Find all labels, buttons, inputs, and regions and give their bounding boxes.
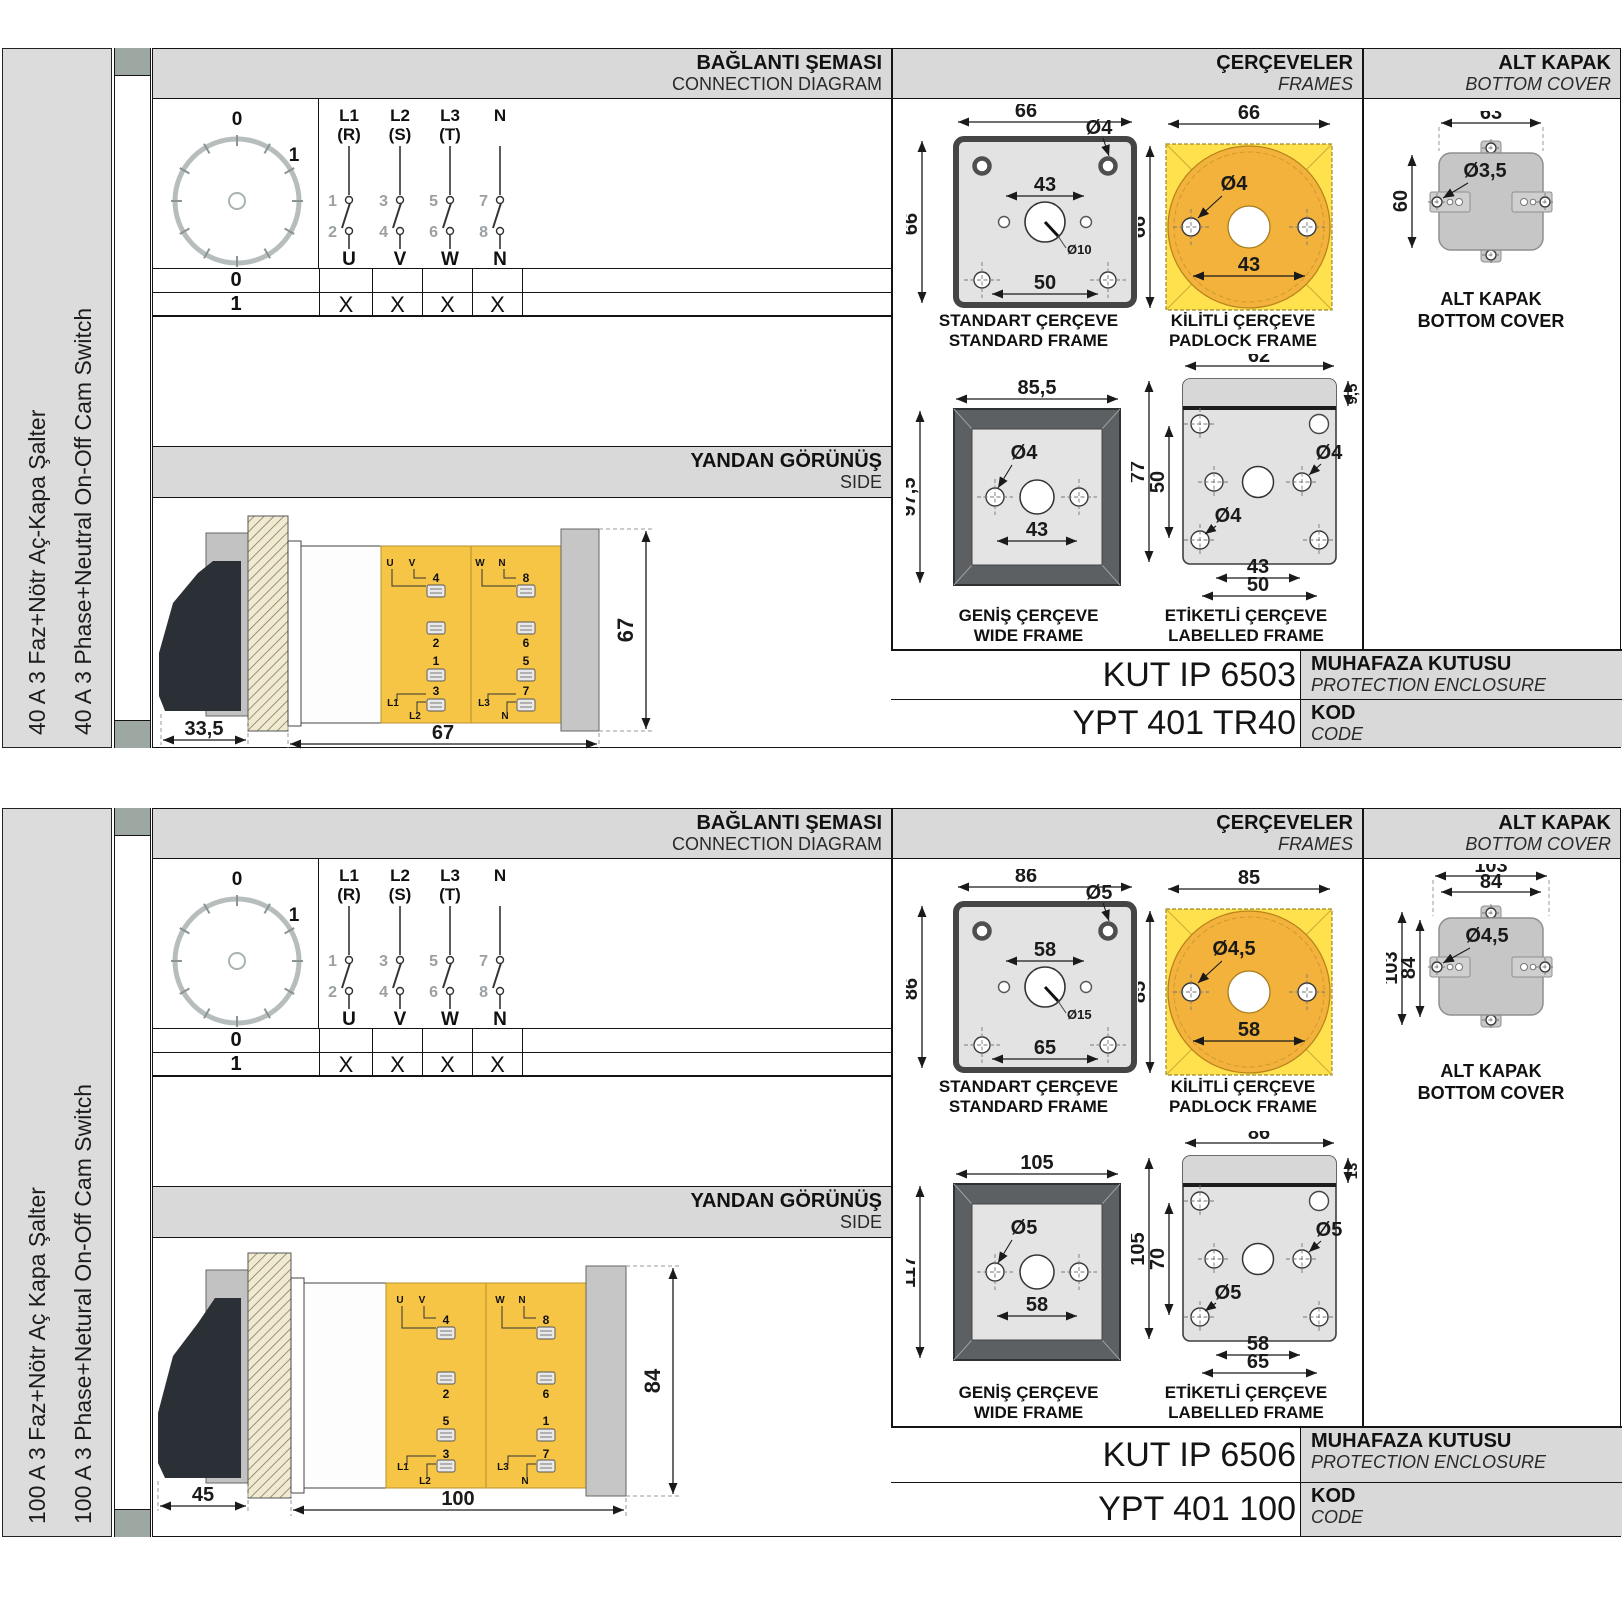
svg-text:7: 7 [543, 1447, 550, 1461]
phase-label: L1 [339, 106, 359, 125]
phase-label: N [494, 106, 506, 125]
table-cell: X [373, 1053, 423, 1075]
table-cell: X [373, 293, 423, 315]
bottom-cover-drawing: 63 60 Ø3,5 [1386, 111, 1606, 286]
svg-text:V: V [419, 1295, 426, 1306]
svg-text:3: 3 [443, 1447, 450, 1461]
mounting-plate [248, 1253, 291, 1498]
column-divider [1362, 809, 1364, 1426]
code-label: KOD CODE [1300, 1483, 1622, 1536]
svg-text:N: N [498, 558, 505, 569]
product-side-label-panel: 100 A 3 Faz+Nötr Aç Kapa Şalter 100 A 3 … [2, 808, 112, 1537]
header-english: FRAMES [891, 75, 1353, 95]
header-turkish: YANDAN GÖRÜNÜŞ [153, 1190, 882, 1213]
dim-span-outer: 50 [1247, 574, 1269, 596]
phase-column-l1: L1 (R) 1 2 U [328, 106, 361, 269]
caption-english: PADLOCK FRAME [1138, 331, 1348, 351]
bottom-cover-cell: 103 84 103 84 Ø4,5 [1386, 864, 1606, 1054]
dim-width: 86 [1248, 1131, 1270, 1144]
wide-frame-cell: 85,5 97,5 Ø4 43 [906, 379, 1151, 604]
bottom-cover-cell: 63 60 Ø3,5 [1386, 111, 1606, 286]
binder-strip [114, 808, 151, 1537]
phase-sublabel: (T) [439, 885, 461, 904]
dim-width: 66 [1015, 104, 1037, 122]
bottom-cover-drawing: 103 84 103 84 Ø4,5 [1386, 864, 1606, 1054]
contact-number-top: 3 [379, 193, 388, 210]
contact-number-bottom: 8 [479, 224, 488, 241]
bottom-cover-header: ALT KAPAK BOTTOM COVER [1362, 809, 1620, 859]
product-name-english: 40 A 3 Phase+Neutral On-Off Cam Switch [72, 308, 95, 735]
output-label: W [441, 249, 459, 269]
dim-width: 86 [1015, 869, 1037, 887]
svg-text:5: 5 [443, 1414, 450, 1428]
bottom-cover-header: ALT KAPAK BOTTOM COVER [1362, 49, 1620, 99]
dial-position-0: 0 [232, 109, 243, 130]
dim-height-inner: 84 [1398, 956, 1420, 979]
svg-text:U: U [386, 558, 393, 569]
product-code-row: YPT 401 TR40 KOD CODE [891, 699, 1622, 747]
table-cell: X [320, 1053, 373, 1075]
dim-body-depth: 67 [432, 722, 454, 744]
output-label: V [394, 1009, 407, 1029]
table-cell: X [423, 1053, 473, 1075]
enclosure-label: MUHAFAZA KUTUSU PROTECTION ENCLOSURE [1300, 1428, 1622, 1482]
contact-number-top: 7 [479, 953, 488, 970]
phase-label: L3 [440, 106, 460, 125]
header-english: CONNECTION DIAGRAM [153, 75, 882, 95]
caption-turkish: GENİŞ ÇERÇEVE [906, 1383, 1151, 1403]
output-label: N [493, 249, 507, 269]
dim-hole-span: 43 [1026, 519, 1048, 541]
switch-table-row-0: 0 [153, 1029, 891, 1053]
svg-text:2: 2 [433, 636, 440, 650]
label-english: CODE [1311, 725, 1622, 745]
enclosure-label: MUHAFAZA KUTUSU PROTECTION ENCLOSURE [1300, 651, 1622, 699]
dim-width: 105 [1020, 1154, 1053, 1174]
wide-frame-cell: 105 117 Ø5 58 [906, 1154, 1151, 1379]
table-cell [423, 1029, 473, 1052]
contact-number-bottom: 6 [429, 984, 438, 1001]
dim-height: 84 [640, 1368, 665, 1393]
output-label: V [394, 249, 407, 269]
dim-hole: Ø4,5 [1465, 925, 1508, 947]
product-name-english: 100 A 3 Phase+Netural On-Off Cam Switch [72, 1084, 95, 1524]
dial-position-1: 1 [289, 145, 300, 166]
table-cell [473, 1029, 523, 1052]
dim-hole: Ø3,5 [1463, 160, 1506, 182]
protection-enclosure-row: KUT IP 6503 MUHAFAZA KUTUSU PROTECTION E… [891, 649, 1622, 699]
phase-sublabel: (S) [389, 885, 412, 904]
header-english: BOTTOM COVER [1362, 75, 1611, 95]
caption-english: WIDE FRAME [906, 626, 1151, 646]
row-label: 0 [153, 1029, 320, 1052]
switch-position-dial: 0 1 [153, 99, 319, 269]
dim-width: 63 [1480, 111, 1502, 124]
binder-strip-bottom-cap [115, 1509, 150, 1537]
dim-height: 66 [1138, 216, 1150, 238]
dial-position-1: 1 [289, 905, 300, 926]
labelled-frame-cell: 62 9,5 77 50 Ø4 Ø4 43 [1131, 354, 1361, 604]
dim-height: 67 [613, 618, 638, 642]
contact-columns-cell: L1 (R) 1 2 U L2 (S) [319, 859, 891, 1029]
dim-hole-upper: Ø5 [1316, 1219, 1343, 1241]
dim-hole: Ø4,5 [1212, 938, 1255, 960]
product-side-label-panel: 40 A 3 Faz+Nötr Aç-Kapa Şalter 40 A 3 Ph… [2, 48, 112, 748]
header-turkish: ALT KAPAK [1362, 812, 1611, 835]
contact-number-bottom: 6 [429, 224, 438, 241]
caption-english: BOTTOM COVER [1362, 1083, 1620, 1105]
dim-center-hole: Ø10 [1067, 242, 1092, 257]
phase-sublabel: (S) [389, 125, 412, 144]
switch-table-row-1: 1 X X X X [153, 1053, 891, 1077]
contact-number-bottom: 2 [328, 224, 337, 241]
dim-hole: Ø4 [1086, 117, 1114, 139]
contact-number-top: 1 [328, 193, 337, 210]
product-code-row: YPT 401 100 KOD CODE [891, 1482, 1622, 1536]
table-cell: X [320, 293, 373, 315]
table-cell [423, 269, 473, 292]
svg-text:1: 1 [433, 654, 440, 668]
dim-bottom-span: 50 [1034, 272, 1056, 294]
label-english: PROTECTION ENCLOSURE [1311, 676, 1622, 696]
svg-text:6: 6 [523, 636, 530, 650]
table-cell [320, 1029, 373, 1052]
label-english: PROTECTION ENCLOSURE [1311, 1453, 1622, 1473]
svg-text:L2: L2 [419, 1476, 431, 1487]
dial-position-0: 0 [232, 869, 243, 890]
product-code-value: YPT 401 TR40 [891, 700, 1300, 747]
side-view-header: YANDAN GÖRÜNÜŞ SIDE [153, 1186, 891, 1238]
svg-text:U: U [396, 1295, 403, 1306]
row-label: 1 [153, 1053, 320, 1075]
svg-text:7: 7 [523, 684, 530, 698]
caption-turkish: KİLİTLİ ÇERÇEVE [1138, 1077, 1348, 1097]
column-divider [891, 49, 893, 746]
svg-text:L3: L3 [497, 1462, 509, 1473]
labelled-frame-caption: ETİKETLİ ÇERÇEVE LABELLED FRAME [1131, 606, 1361, 647]
dim-width: 66 [1238, 104, 1260, 124]
table-cell [473, 269, 523, 292]
svg-text:L2: L2 [409, 711, 421, 722]
labelled-frame-drawing: 62 9,5 77 50 Ø4 Ø4 43 [1131, 354, 1361, 604]
header-english: CONNECTION DIAGRAM [153, 835, 882, 855]
svg-text:5: 5 [523, 654, 530, 668]
contact-number-bottom: 8 [479, 984, 488, 1001]
wide-frame-caption: GENİŞ ÇERÇEVE WIDE FRAME [906, 606, 1151, 647]
frames-header: ÇERÇEVELER FRAMES [891, 49, 1362, 99]
output-label: W [441, 1009, 459, 1029]
contact-number-top: 3 [379, 953, 388, 970]
svg-text:8: 8 [543, 1313, 550, 1327]
standard-frame-caption: STANDART ÇERÇEVE STANDARD FRAME [906, 311, 1151, 352]
side-view-cell: U V 4 2 5 3 L1 L2 [153, 1238, 891, 1538]
enclosure-code-value: KUT IP 6506 [891, 1428, 1300, 1482]
label-turkish: MUHAFAZA KUTUSU [1311, 1430, 1622, 1453]
labelled-frame-caption: ETİKETLİ ÇERÇEVE LABELLED FRAME [1131, 1383, 1361, 1424]
svg-text:6: 6 [543, 1387, 550, 1401]
dim-bottom-span: 65 [1034, 1037, 1056, 1059]
phase-label: L3 [440, 866, 460, 885]
dim-width-inner: 84 [1480, 871, 1503, 893]
dim-hole-upper: Ø4 [1316, 442, 1344, 464]
section-100a-switch: 100 A 3 Faz+Nötr Aç Kapa Şalter 100 A 3 … [0, 808, 1623, 1537]
dim-height: 86 [906, 978, 922, 1000]
dim-label-strip: 13 [1344, 1163, 1361, 1180]
svg-text:4: 4 [443, 1313, 450, 1327]
phase-column-l3: L3 (T) 5 6 W [429, 106, 461, 269]
row-label: 1 [153, 293, 320, 315]
svg-text:4: 4 [433, 571, 440, 585]
header-turkish: ALT KAPAK [1362, 52, 1611, 75]
label-english: CODE [1311, 1508, 1622, 1528]
contact-diagram: L1 (R) 1 2 U L2 (S) [319, 99, 891, 269]
header-turkish: BAĞLANTI ŞEMASI [153, 52, 882, 75]
dim-body-depth: 100 [441, 1488, 474, 1510]
dim-hole: Ø4 [1011, 442, 1039, 464]
output-label: N [493, 1009, 507, 1029]
dim-height: 66 [906, 213, 922, 235]
contact-number-bottom: 2 [328, 984, 337, 1001]
caption-turkish: STANDART ÇERÇEVE [906, 1077, 1151, 1097]
side-view-drawing: U V 4 2 1 3 L1 L2 [153, 498, 891, 749]
phase-sublabel: (T) [439, 125, 461, 144]
svg-text:N: N [521, 1476, 528, 1487]
phase-label: L1 [339, 866, 359, 885]
dim-vertical-span: 50 [1147, 471, 1169, 493]
wide-frame-caption: GENİŞ ÇERÇEVE WIDE FRAME [906, 1383, 1151, 1424]
table-cell [320, 269, 373, 292]
mounting-plate [248, 516, 288, 731]
contact-number-bottom: 4 [379, 224, 388, 241]
output-label: U [342, 1009, 356, 1029]
caption-english: PADLOCK FRAME [1138, 1097, 1348, 1117]
header-english: SIDE [153, 473, 882, 493]
phase-column-l2: L2 (S) 3 4 V [379, 106, 411, 269]
phase-column-l3: L3 (T) 5 6 W [429, 866, 461, 1029]
phase-column-l2: L2 (S) 3 4 V [379, 866, 411, 1029]
catalog-page: 40 A 3 Faz+Nötr Aç-Kapa Şalter 40 A 3 Ph… [0, 0, 1623, 1623]
caption-turk: ALT KAPAK [1362, 289, 1620, 311]
contact-number-top: 7 [479, 193, 488, 210]
product-name-turkish: 100 A 3 Faz+Nötr Aç Kapa Şalter [26, 1187, 49, 1524]
table-cell: X [473, 293, 523, 315]
side-view-cell: U V 4 2 1 3 L1 L2 [153, 498, 891, 749]
header-english: FRAMES [891, 835, 1353, 855]
dim-width: 85,5 [1018, 379, 1057, 399]
product-name-turkish: 40 A 3 Faz+Nötr Aç-Kapa Şalter [26, 410, 49, 735]
dim-width: 85 [1238, 869, 1260, 889]
switch-dial-cell: 0 1 [153, 99, 319, 269]
header-english: BOTTOM COVER [1362, 835, 1611, 855]
caption-turkish: KİLİTLİ ÇERÇEVE [1138, 311, 1348, 331]
table-cell [373, 1029, 423, 1052]
caption-english: WIDE FRAME [906, 1403, 1151, 1423]
dim-hole: Ø5 [1086, 882, 1113, 904]
side-view-header: YANDAN GÖRÜNÜŞ SIDE [153, 446, 891, 498]
contact-columns-cell: L1 (R) 1 2 U L2 (S) [319, 99, 891, 269]
table-cell [373, 269, 423, 292]
connection-diagram-header: BAĞLANTI ŞEMASI CONNECTION DIAGRAM [153, 49, 891, 99]
dim-handle-depth: 33,5 [185, 718, 224, 740]
padlock-frame-caption: KİLİTLİ ÇERÇEVE PADLOCK FRAME [1138, 311, 1348, 352]
caption-turkish: GENİŞ ÇERÇEVE [906, 606, 1151, 626]
svg-text:N: N [501, 711, 508, 722]
label-turkish: KOD [1311, 1485, 1622, 1508]
table-cell: X [473, 1053, 523, 1075]
wide-frame-drawing: 105 117 Ø5 58 [906, 1154, 1151, 1379]
phase-sublabel: (R) [337, 885, 361, 904]
protection-enclosure-row: KUT IP 6506 MUHAFAZA KUTUSU PROTECTION E… [891, 1426, 1622, 1482]
dim-center-hole: Ø15 [1067, 1007, 1092, 1022]
label-turkish: KOD [1311, 702, 1622, 725]
standard-frame-caption: STANDART ÇERÇEVE STANDARD FRAME [906, 1077, 1151, 1118]
switch-table-row-0: 0 [153, 269, 891, 293]
output-label: U [342, 249, 356, 269]
caption-english: BOTTOM COVER [1362, 311, 1620, 333]
label-turkish: MUHAFAZA KUTUSU [1311, 653, 1622, 676]
svg-text:N: N [518, 1295, 525, 1306]
dim-height: 117 [906, 1256, 920, 1288]
code-label: KOD CODE [1300, 700, 1622, 747]
header-english: SIDE [153, 1213, 882, 1233]
contact-number-top: 1 [328, 953, 337, 970]
section-content: BAĞLANTI ŞEMASI CONNECTION DIAGRAM ÇERÇE… [152, 48, 1621, 748]
labelled-frame-cell: 86 13 105 70 Ø5 Ø5 58 [1131, 1131, 1361, 1381]
section-40a-switch: 40 A 3 Faz+Nötr Aç-Kapa Şalter 40 A 3 Ph… [0, 48, 1623, 748]
product-code-value: YPT 401 100 [891, 1483, 1300, 1536]
row-label: 0 [153, 269, 320, 292]
dim-height: 85 [1138, 981, 1150, 1003]
svg-text:8: 8 [523, 571, 530, 585]
phase-label: N [494, 866, 506, 885]
labelled-frame-drawing: 86 13 105 70 Ø5 Ø5 58 [1131, 1131, 1361, 1381]
phase-column-n: N 7 8 N [479, 106, 507, 269]
caption-english: STANDARD FRAME [906, 331, 1151, 351]
table-cell: X [423, 293, 473, 315]
svg-text:V: V [409, 558, 416, 569]
caption-turkish: ETİKETLİ ÇERÇEVE [1131, 1383, 1361, 1403]
dim-hole-span: 58 [1034, 939, 1056, 961]
svg-text:2: 2 [443, 1387, 450, 1401]
phase-label: L2 [390, 866, 410, 885]
dim-hole-span: 58 [1238, 1019, 1260, 1041]
dim-handle-depth: 45 [192, 1484, 214, 1506]
side-view-drawing: U V 4 2 5 3 L1 L2 [153, 1238, 891, 1538]
dim-hole: Ø4 [1221, 173, 1249, 195]
header-turkish: ÇERÇEVELER [891, 812, 1353, 835]
phase-column-n: N 7 8 N [479, 866, 507, 1029]
bottom-cover-caption: ALT KAPAK BOTTOM COVER [1362, 1061, 1620, 1104]
caption-turkish: ALT KAPAK [1362, 1061, 1620, 1083]
switch-handle [159, 561, 241, 711]
switch-table-row-1: 1 X X X X [153, 293, 891, 317]
bottom-cover-caption: ALT KAPAK BOTTOM COVER [1362, 289, 1620, 332]
svg-text:W: W [475, 558, 485, 569]
dim-width: 62 [1248, 354, 1270, 367]
switch-position-dial: 0 1 [153, 859, 319, 1029]
switch-handle [158, 1298, 241, 1478]
svg-text:W: W [495, 1295, 505, 1306]
caption-english: LABELLED FRAME [1131, 626, 1361, 646]
dim-hole-lower: Ø4 [1215, 505, 1243, 527]
caption-english: LABELLED FRAME [1131, 1403, 1361, 1423]
dim-span-outer: 65 [1247, 1351, 1269, 1373]
frames-header: ÇERÇEVELER FRAMES [891, 809, 1362, 859]
dim-hole-span: 43 [1034, 174, 1056, 196]
switch-dial-cell: 0 1 [153, 859, 319, 1029]
dim-hole-lower: Ø5 [1215, 1282, 1242, 1304]
header-turkish: YANDAN GÖRÜNÜŞ [153, 450, 882, 473]
caption-turkish: STANDART ÇERÇEVE [906, 311, 1151, 331]
dim-hole: Ø5 [1011, 1217, 1038, 1239]
connection-diagram-cell: 0 1 L1 [153, 859, 891, 1029]
phase-column-l1: L1 (R) 1 2 U [328, 866, 361, 1029]
contact-number-top: 5 [429, 953, 438, 970]
dim-label-strip: 9,5 [1344, 384, 1361, 405]
dim-hole-span: 43 [1238, 254, 1260, 276]
phase-sublabel: (R) [337, 125, 361, 144]
svg-text:3: 3 [433, 684, 440, 698]
contact-number-top: 5 [429, 193, 438, 210]
section-content: BAĞLANTI ŞEMASI CONNECTION DIAGRAM ÇERÇE… [152, 808, 1621, 1537]
padlock-frame-caption: KİLİTLİ ÇERÇEVE PADLOCK FRAME [1138, 1077, 1348, 1118]
header-turkish: BAĞLANTI ŞEMASI [153, 812, 882, 835]
enclosure-code-value: KUT IP 6503 [891, 651, 1300, 699]
binder-strip-top-cap [115, 48, 150, 76]
contact-diagram: L1 (R) 1 2 U L2 (S) [319, 859, 891, 1029]
caption-english: STANDARD FRAME [906, 1097, 1151, 1117]
dim-vertical-span: 70 [1147, 1248, 1169, 1270]
wide-frame-drawing: 85,5 97,5 Ø4 43 [906, 379, 1151, 604]
binder-strip-bottom-cap [115, 720, 150, 748]
connection-diagram-cell: 0 1 L1 [153, 99, 891, 269]
header-turkish: ÇERÇEVELER [891, 52, 1353, 75]
contact-number-bottom: 4 [379, 984, 388, 1001]
connection-diagram-header: BAĞLANTI ŞEMASI CONNECTION DIAGRAM [153, 809, 891, 859]
svg-text:1: 1 [543, 1414, 550, 1428]
binder-strip [114, 48, 151, 748]
column-divider [1362, 49, 1364, 649]
dim-height: 97,5 [906, 478, 920, 517]
caption-turkish: ETİKETLİ ÇERÇEVE [1131, 606, 1361, 626]
binder-strip-top-cap [115, 808, 150, 836]
dim-height: 60 [1390, 190, 1412, 212]
dim-hole-span: 58 [1026, 1294, 1048, 1316]
phase-label: L2 [390, 106, 410, 125]
